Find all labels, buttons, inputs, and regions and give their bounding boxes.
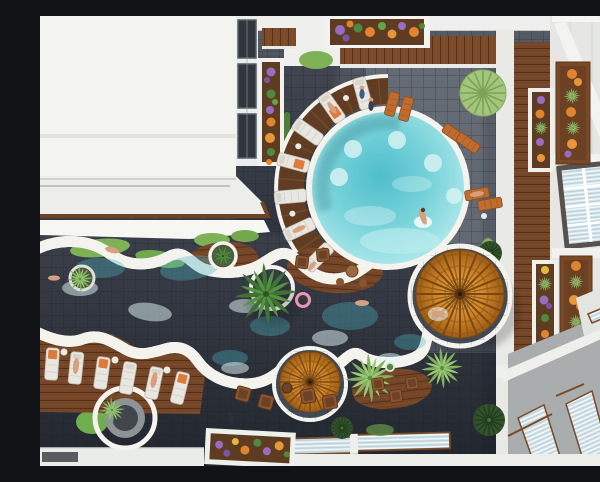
balcony-planter-right-upper-2 [556, 62, 590, 164]
swimmer [355, 300, 369, 306]
flower-planter-bottom [204, 428, 296, 466]
resort-courtyard-render: Aerial 3D render of a resort hotel court… [40, 16, 600, 466]
tower-windows [238, 20, 256, 158]
round-tree-light [460, 70, 506, 116]
aerial-resort-photo: Aerial 3D render of a resort hotel court… [40, 16, 600, 466]
main-building-roof [40, 16, 270, 239]
balcony-planter-left [258, 58, 284, 166]
swimmer-edge [428, 307, 448, 321]
balcony-planter-top [324, 16, 430, 48]
balcony-planter-right-upper-1 [528, 88, 554, 172]
